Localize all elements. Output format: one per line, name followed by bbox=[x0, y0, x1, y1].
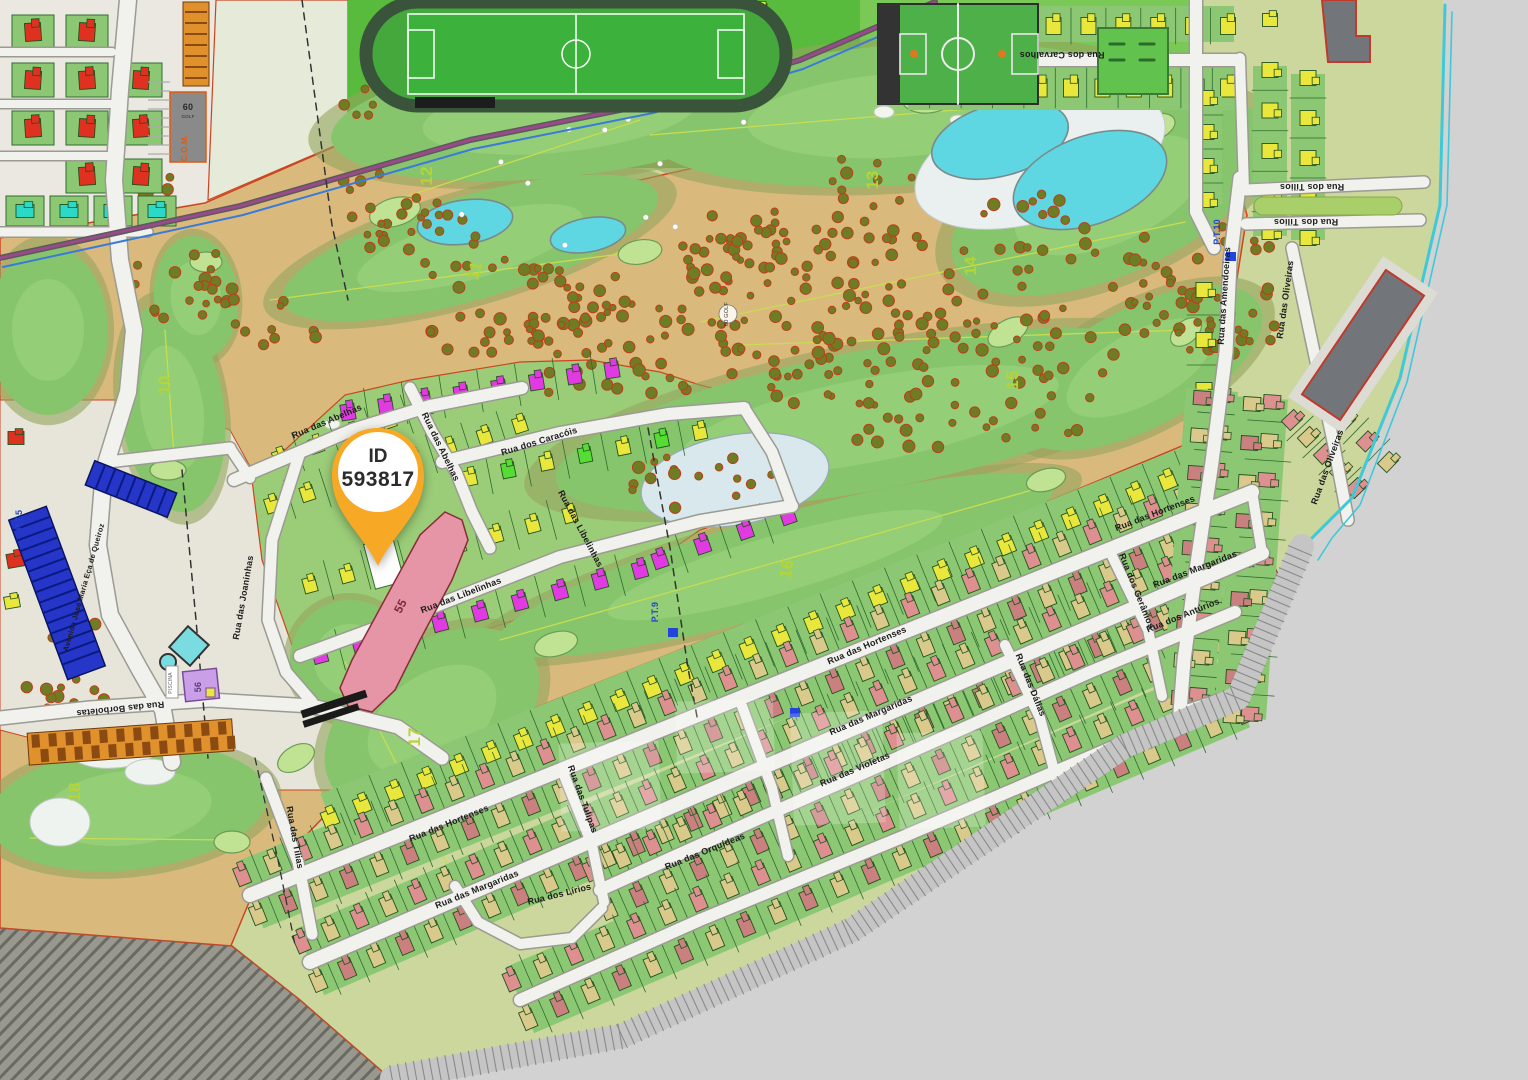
utility-label: P.T.9 bbox=[650, 602, 660, 622]
golf-hole-number: 14 bbox=[961, 256, 980, 276]
site-plan-map: Rua dos CarvalhosRua dos TíliosRua dos T… bbox=[0, 0, 1528, 1080]
poi-label: C.O.M. bbox=[180, 135, 189, 162]
golf-hole-number: 18 bbox=[65, 782, 84, 801]
utility-label: P.T.5 bbox=[14, 510, 24, 530]
poi-label: 60 bbox=[183, 102, 193, 112]
poi-label: 60 GOLF bbox=[724, 302, 730, 326]
site-plan-canvas: Rua dos CarvalhosRua dos TíliosRua dos T… bbox=[0, 0, 1528, 1080]
pin-id-label: ID bbox=[318, 447, 438, 468]
utility-label: P.T.10 bbox=[1212, 219, 1222, 245]
pin-label: ID 593817 bbox=[318, 447, 438, 491]
golf-hole-number: 10 bbox=[155, 375, 174, 394]
golf-hole-number: 15 bbox=[1003, 370, 1022, 389]
pin-id-value: 593817 bbox=[318, 468, 438, 491]
poi-label: PISCINA bbox=[168, 672, 174, 694]
poi-label: 56 bbox=[193, 682, 203, 692]
golf-hole-number: 13 bbox=[863, 170, 882, 189]
golf-hole-number: 17 bbox=[405, 727, 424, 746]
map-pin-marker[interactable]: ID 593817 bbox=[318, 420, 438, 570]
golf-hole-number: 16 bbox=[776, 558, 798, 580]
street-label: Rua dos Tílios bbox=[1280, 182, 1344, 192]
street-label: Rua dos Carvalhos bbox=[1020, 50, 1105, 60]
golf-hole-number: 12 bbox=[417, 166, 436, 185]
street-label: Rua dos Tílios bbox=[1274, 217, 1338, 227]
pin-icon bbox=[318, 420, 438, 570]
poi-label: GOLF bbox=[181, 114, 194, 119]
